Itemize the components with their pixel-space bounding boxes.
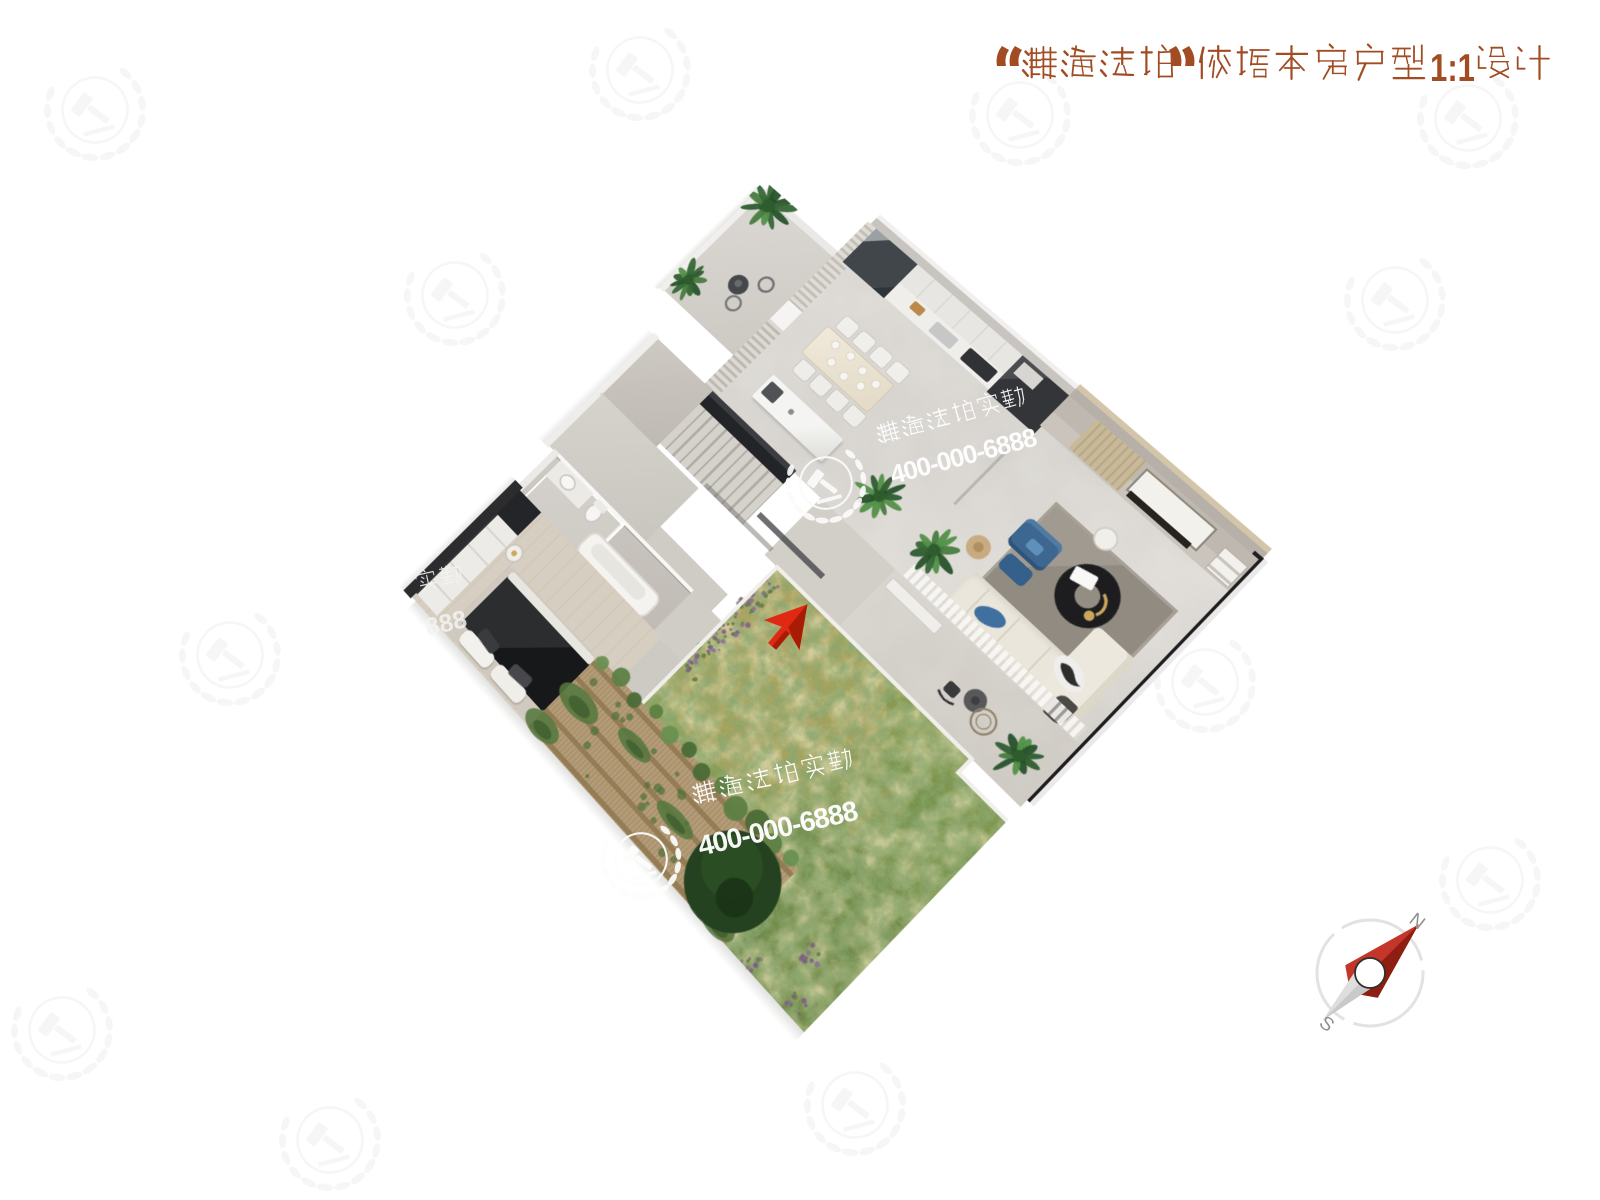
svg-text:S: S [1315,1012,1338,1036]
svg-text:400-000-6888: 400-000-6888 [695,795,861,862]
svg-text:888: 888 [423,605,470,642]
svg-text:400-000-6888: 400-000-6888 [887,422,1040,490]
svg-text:1:1: 1:1 [1430,47,1475,90]
